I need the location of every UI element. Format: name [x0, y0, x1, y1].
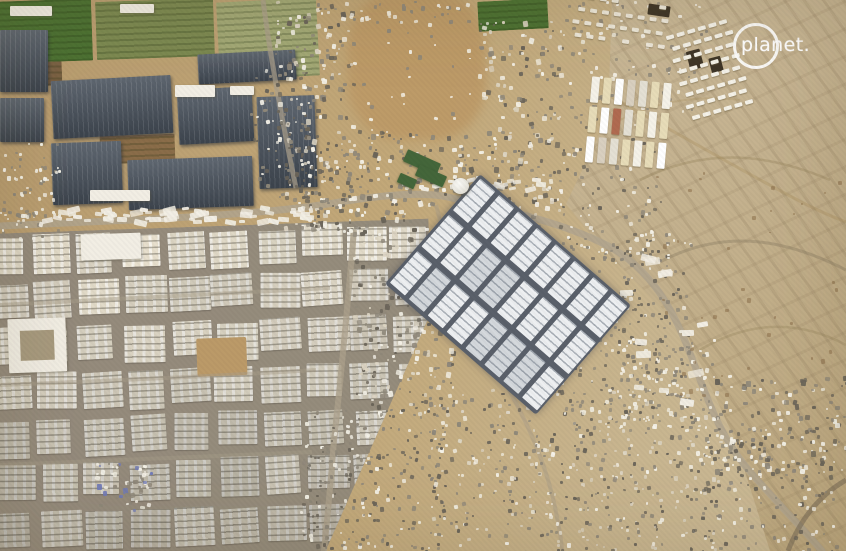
small-tent — [732, 65, 741, 71]
small-tent — [658, 44, 665, 48]
small-tent — [692, 114, 701, 120]
small-tent — [574, 32, 581, 36]
long-tent — [656, 142, 666, 169]
long-tent — [587, 106, 597, 133]
small-tent — [727, 79, 736, 85]
small-tent — [693, 51, 702, 57]
small-tent — [637, 15, 644, 19]
small-tent — [700, 62, 709, 68]
long-tent — [597, 137, 607, 164]
small-tent — [676, 31, 685, 37]
small-tent — [719, 19, 728, 25]
long-tent — [621, 139, 631, 166]
small-tent — [598, 36, 605, 40]
long-tent — [647, 111, 657, 138]
small-tent — [644, 29, 651, 33]
small-tent — [614, 12, 621, 16]
small-tent — [632, 27, 639, 31]
small-tent — [702, 111, 711, 117]
long-tent — [585, 136, 595, 163]
long-tent — [590, 76, 600, 103]
long-tent — [659, 113, 669, 140]
small-tent — [738, 76, 747, 82]
small-tent — [721, 68, 730, 74]
small-tent — [717, 94, 726, 100]
small-tent — [646, 43, 653, 47]
small-tent — [689, 65, 698, 71]
small-tent — [572, 19, 579, 23]
small-tent — [620, 26, 627, 30]
small-tent — [584, 21, 591, 25]
long-tent — [602, 77, 612, 104]
small-tent — [590, 8, 597, 12]
small-tent — [608, 24, 615, 28]
small-tent — [745, 99, 754, 105]
long-tent — [662, 83, 672, 110]
small-tent — [713, 108, 722, 114]
small-tent — [683, 54, 692, 60]
small-tent — [686, 103, 695, 109]
small-tent — [734, 102, 743, 108]
small-tent — [689, 77, 698, 83]
small-tent — [586, 34, 593, 38]
small-tent — [655, 31, 662, 35]
small-tent — [612, 0, 619, 3]
white-dome-building — [452, 178, 469, 194]
long-tent — [609, 138, 619, 165]
long-tent — [623, 109, 633, 136]
planet-logo: planet. — [741, 34, 810, 56]
long-tent — [632, 140, 642, 167]
small-tent — [706, 85, 715, 91]
small-tent — [602, 10, 609, 14]
small-tent — [696, 100, 705, 106]
small-tent — [700, 74, 709, 80]
small-tent — [714, 33, 723, 39]
small-tent — [738, 88, 747, 94]
small-tent — [672, 57, 681, 63]
small-tent — [708, 22, 717, 28]
small-tent — [626, 13, 633, 17]
small-tent — [704, 36, 713, 42]
small-tent — [678, 68, 687, 74]
long-tent — [614, 78, 624, 105]
small-tent — [693, 39, 702, 45]
small-tent — [679, 80, 688, 86]
small-tent — [685, 91, 694, 97]
small-tent — [721, 56, 730, 62]
small-tent — [707, 97, 716, 103]
small-tent — [697, 25, 706, 31]
small-tent — [687, 28, 696, 34]
long-tent — [635, 110, 645, 137]
small-tent — [704, 48, 713, 54]
small-tent — [723, 105, 732, 111]
long-tent — [638, 81, 648, 108]
small-tent — [578, 7, 585, 11]
small-tent — [715, 45, 724, 51]
small-tent — [710, 59, 719, 65]
small-tent — [649, 17, 656, 21]
small-tent — [600, 0, 607, 1]
small-tent — [696, 88, 705, 94]
long-tent — [611, 108, 621, 135]
small-tent — [596, 22, 603, 26]
small-tent — [725, 30, 734, 36]
small-tent — [661, 18, 668, 22]
small-tent — [682, 42, 691, 48]
long-tent — [650, 82, 660, 109]
small-tent — [672, 45, 681, 51]
small-tent — [659, 5, 666, 9]
long-tent — [644, 141, 654, 168]
tent-grid-long-rows — [584, 76, 680, 175]
small-tent — [711, 71, 720, 77]
small-tent — [728, 91, 737, 97]
small-tent — [717, 82, 726, 88]
long-tent — [599, 107, 609, 134]
satellite-image: planet. — [0, 0, 846, 551]
small-tent — [622, 39, 629, 43]
long-tent — [626, 79, 636, 106]
